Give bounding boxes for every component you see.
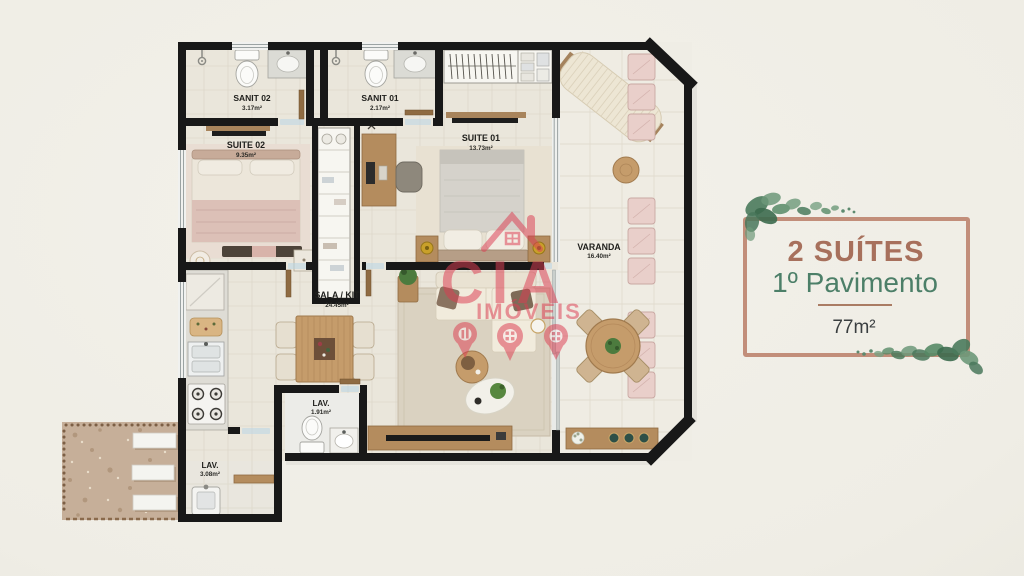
label-varanda: VARANDA — [577, 242, 621, 252]
planters — [132, 433, 178, 512]
tv-panel — [206, 126, 270, 136]
chair — [276, 354, 297, 380]
plan-shadow-bottom — [286, 461, 651, 465]
sink-vanity — [330, 428, 358, 453]
window — [552, 118, 560, 262]
tv-console — [368, 426, 512, 450]
nightstand-left — [416, 236, 438, 262]
wardrobe-column — [318, 128, 350, 298]
plant-stand — [398, 267, 418, 302]
area-lav-small: 1.91m² — [311, 409, 331, 416]
label-suite01: SUITE 01 — [462, 133, 500, 143]
window — [362, 42, 398, 50]
toilet-icon — [235, 50, 259, 87]
office-chair — [396, 162, 422, 192]
area-sanit02: 3.17m² — [242, 105, 262, 112]
shelf — [234, 475, 274, 483]
watermark-word: IMÓVEIS — [476, 299, 582, 324]
window — [232, 42, 268, 50]
door-leaf — [286, 270, 291, 297]
area-suite02: 9.35m² — [236, 152, 256, 159]
window — [178, 282, 186, 378]
sink-counter — [268, 50, 308, 78]
label-suite02: SUITE 02 — [227, 140, 265, 150]
desk — [362, 134, 396, 206]
kitchen — [182, 270, 228, 430]
chair — [353, 322, 374, 348]
area-lav-service: 3.08m² — [200, 471, 220, 478]
fridge — [186, 274, 224, 310]
leaf-decoration-top-left — [742, 191, 856, 242]
closet-wardrobe — [444, 50, 552, 83]
area-sala-kit: 24.45m² — [325, 302, 348, 309]
side-table — [613, 157, 639, 183]
panel-title: 2 SUÍTES — [788, 234, 925, 268]
cutting-board — [190, 318, 222, 336]
area-varanda: 16.40m² — [587, 253, 610, 260]
coffee-table — [456, 351, 488, 383]
plan-shadow-right — [692, 84, 697, 422]
panel-area: 77m² — [832, 317, 875, 338]
double-bed — [192, 150, 300, 242]
area-suite01: 13.73m² — [469, 145, 492, 152]
tv-panel — [446, 112, 526, 123]
panel-subtitle: 1º Pavimento — [772, 267, 938, 298]
door-leaf — [405, 110, 433, 115]
cooktop — [188, 384, 225, 424]
label-lav-small: LAV. — [313, 399, 330, 408]
chair — [353, 354, 374, 380]
info-panel: 2 SUÍTES 1º Pavimento 77m² — [742, 191, 986, 377]
label-sanit01: SANIT 01 — [361, 93, 399, 103]
toilet-icon — [364, 50, 388, 87]
area-sanit01: 2.17m² — [370, 105, 390, 112]
label-sala-kit: SALA / KIT — [314, 290, 360, 300]
garden-patio — [62, 422, 180, 520]
dining-table — [296, 316, 353, 382]
washtub — [192, 485, 220, 515]
label-sanit02: SANIT 02 — [233, 93, 271, 103]
door-leaf — [366, 270, 371, 296]
window — [178, 150, 186, 228]
label-lav-service: LAV. — [202, 461, 219, 470]
sideboard — [566, 428, 658, 449]
kitchen-sink — [188, 342, 224, 376]
door-leaf — [340, 379, 360, 384]
door-leaf — [299, 90, 304, 119]
toilet-icon — [300, 416, 324, 453]
sink-counter — [394, 50, 436, 78]
bench-throw — [252, 246, 276, 257]
floorplan-scene: SANIT 02 3.17m² SANIT 01 2.17m² SUITE 02… — [0, 0, 1024, 576]
varanda-dining-set — [575, 308, 651, 384]
chair — [276, 322, 297, 348]
